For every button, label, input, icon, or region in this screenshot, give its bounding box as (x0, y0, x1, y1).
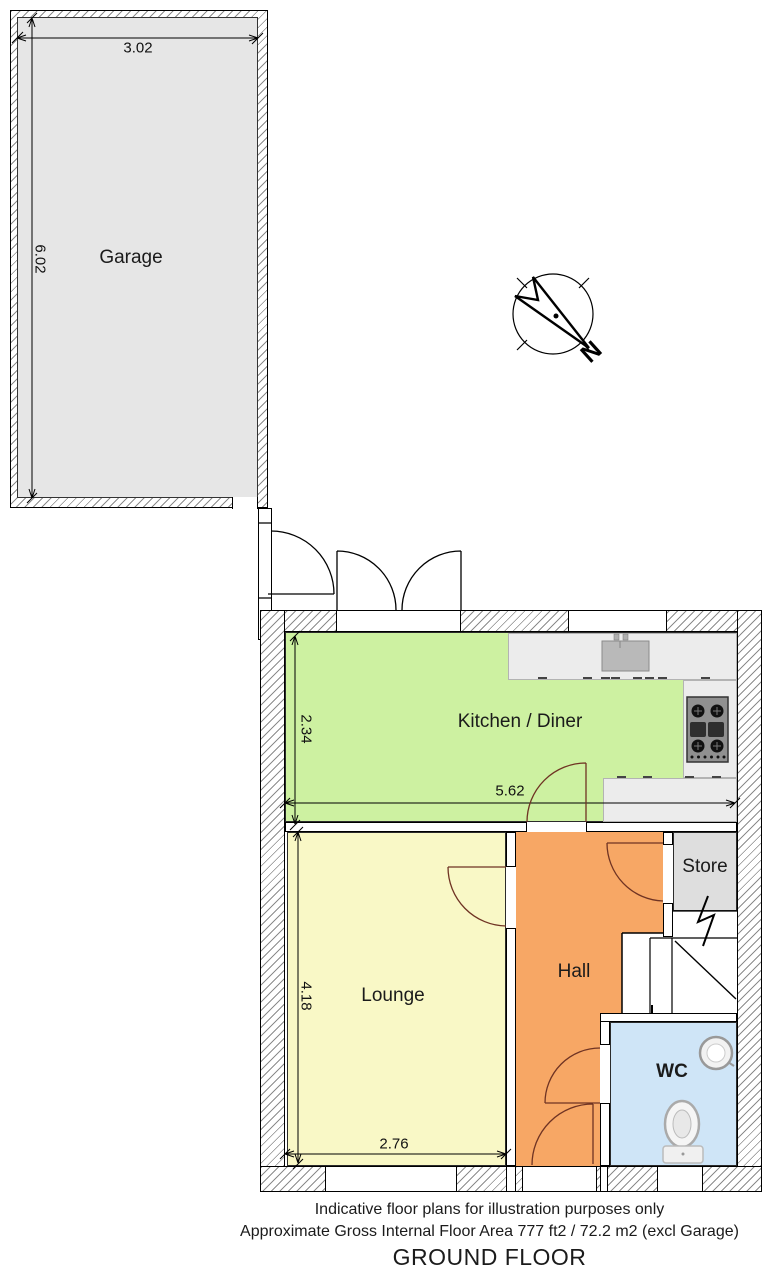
kitchen-counter-top (508, 633, 737, 680)
front-door-opening (522, 1166, 597, 1192)
wall-lounge-hall-bottom (506, 928, 516, 1166)
kitchen-counter-bottom (603, 778, 737, 822)
hall-label: Hall (558, 961, 591, 983)
wall-kitchen-hall-right (586, 822, 737, 832)
floor-plan-canvas: N (0, 0, 779, 1280)
house-wall-left (260, 610, 285, 1192)
kitchen-width-dim: 5.62 (495, 783, 524, 800)
french-door-left (337, 551, 396, 610)
wall-hall-store-bottom (663, 903, 673, 937)
room-hall (516, 832, 663, 933)
floor-area-text: Approximate Gross Internal Floor Area 77… (200, 1223, 779, 1241)
exterior-doors (258, 523, 461, 610)
garage-width-dim: 3.02 (123, 40, 152, 57)
garage-label: Garage (99, 247, 162, 269)
wall-kitchen-lounge-left (285, 822, 527, 832)
north-label: N (575, 336, 607, 369)
compass-north-arrow: N (513, 274, 607, 368)
lounge-label: Lounge (361, 985, 424, 1007)
wc-wall-stub (600, 1166, 608, 1192)
room-wc (610, 1022, 737, 1166)
store-label: Store (682, 856, 727, 878)
disclaimer-text: Indicative floor plans for illustration … (200, 1201, 779, 1219)
garage-door-gap (232, 497, 258, 509)
wall-wc-top (600, 1013, 737, 1022)
garage-depth-dim: 6.02 (32, 244, 49, 273)
kitchen-counter-right (683, 680, 737, 778)
kitchen-depth-dim: 2.34 (298, 714, 315, 743)
lounge-width-dim: 2.76 (379, 1136, 408, 1153)
lounge-wall-stub (506, 1166, 516, 1192)
wall-hall-store-top (663, 832, 673, 845)
footer: Indicative floor plans for illustration … (200, 1201, 779, 1271)
wc-window (657, 1166, 703, 1192)
lounge-depth-dim: 4.18 (298, 981, 315, 1010)
lounge-window (325, 1166, 457, 1192)
floor-title: GROUND FLOOR (200, 1244, 779, 1271)
wc-label: WC (656, 1061, 688, 1083)
french-door-right (402, 551, 461, 610)
house-wall-right (737, 610, 762, 1192)
kitchen-label: Kitchen / Diner (458, 711, 583, 733)
room-hall-lower (516, 1013, 600, 1166)
kitchen-window (568, 610, 667, 632)
wall-hall-wc-bottom (600, 1103, 610, 1166)
french-door-opening (336, 610, 461, 632)
wall-lounge-hall-top (506, 832, 516, 867)
lobby-door-arc (268, 531, 334, 594)
